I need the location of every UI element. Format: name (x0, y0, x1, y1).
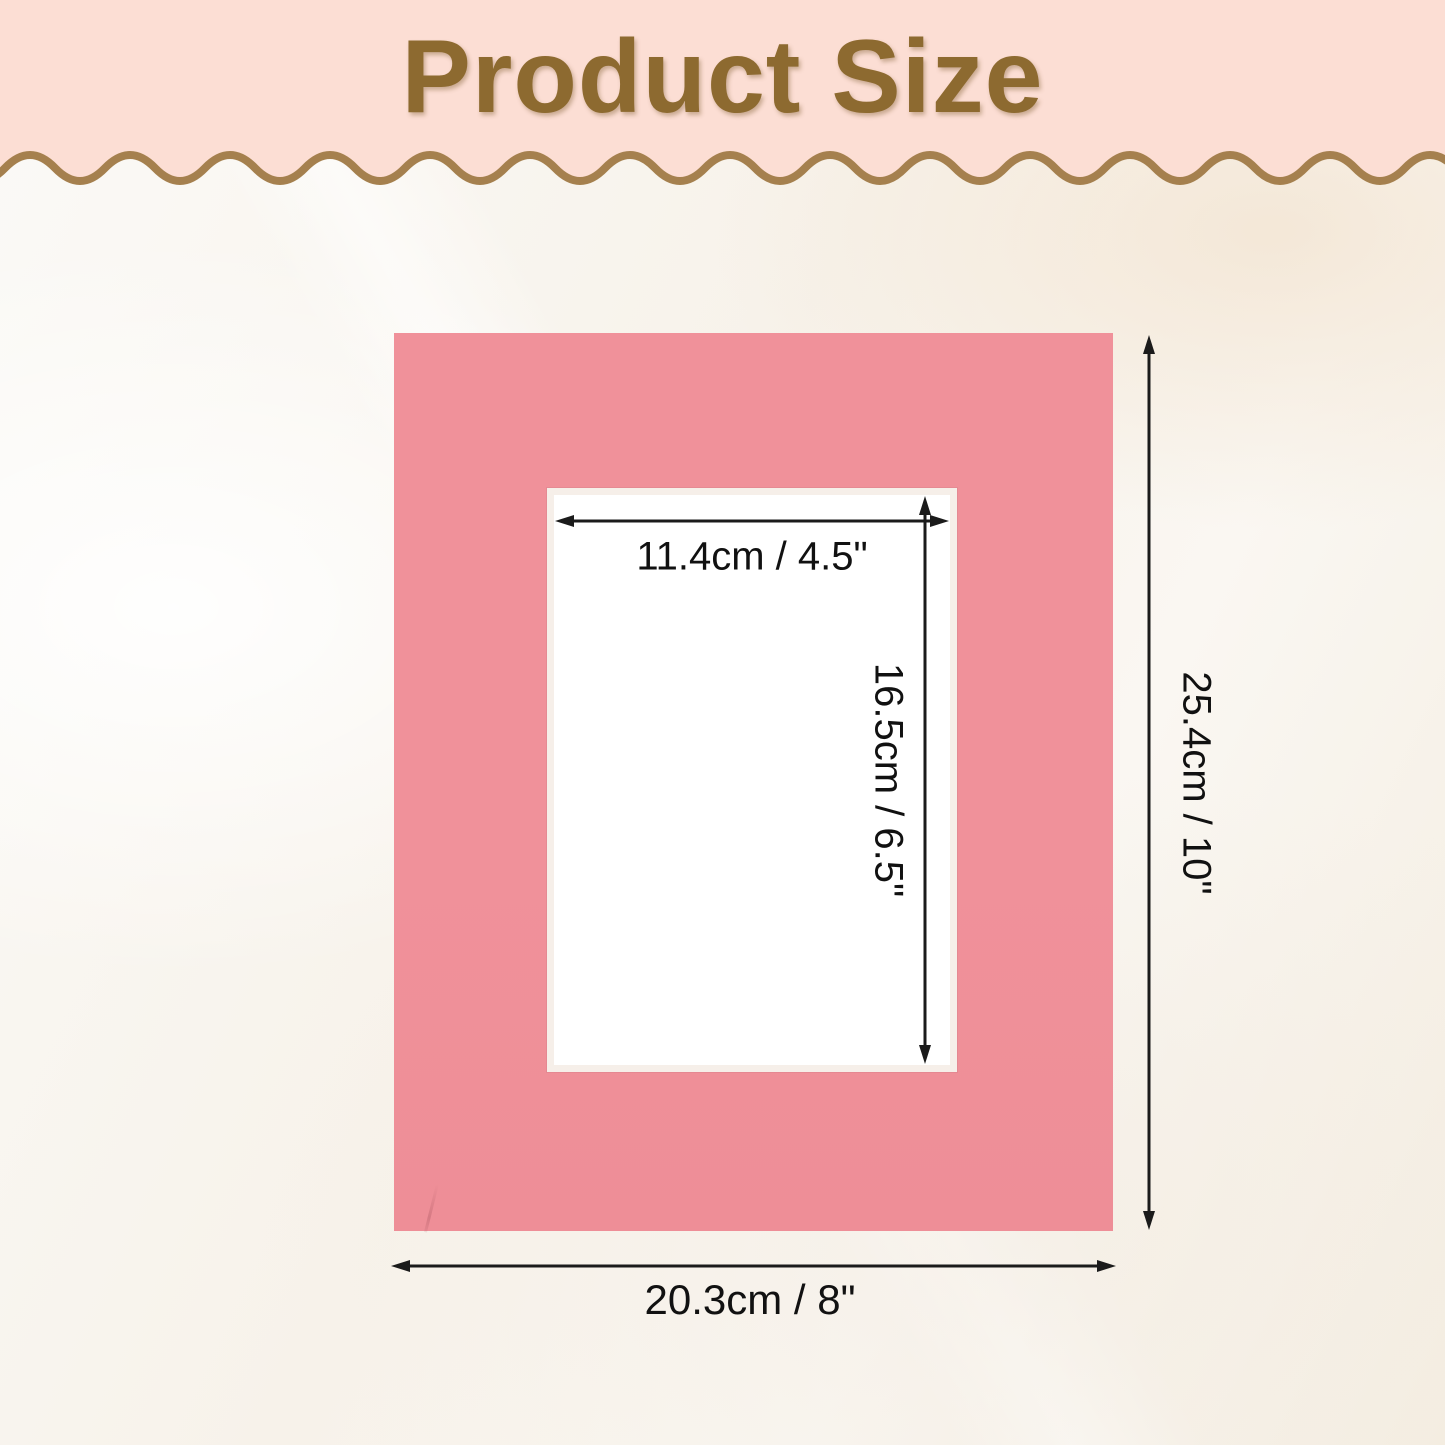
outer-height-label: 25.4cm / 10" (1174, 671, 1219, 894)
page-title: Product Size (0, 16, 1445, 139)
inner-width-arrow-icon (554, 511, 950, 531)
outer-width-label: 20.3cm / 8" (644, 1276, 855, 1324)
inner-height-label: 16.5cm / 6.5" (866, 663, 911, 897)
inner-height-arrow-icon (915, 495, 935, 1065)
scalloped-wave-border (0, 155, 1445, 181)
outer-height-arrow-icon (1139, 334, 1159, 1231)
mat-board (394, 333, 1113, 1231)
mat-crease-mark (424, 1183, 439, 1232)
inner-width-label: 11.4cm / 4.5" (636, 535, 867, 580)
outer-width-arrow-icon (390, 1256, 1117, 1276)
product-size-infographic: Product Size 11.4cm / 4.5" 16.5cm / 6.5"… (0, 0, 1445, 1445)
